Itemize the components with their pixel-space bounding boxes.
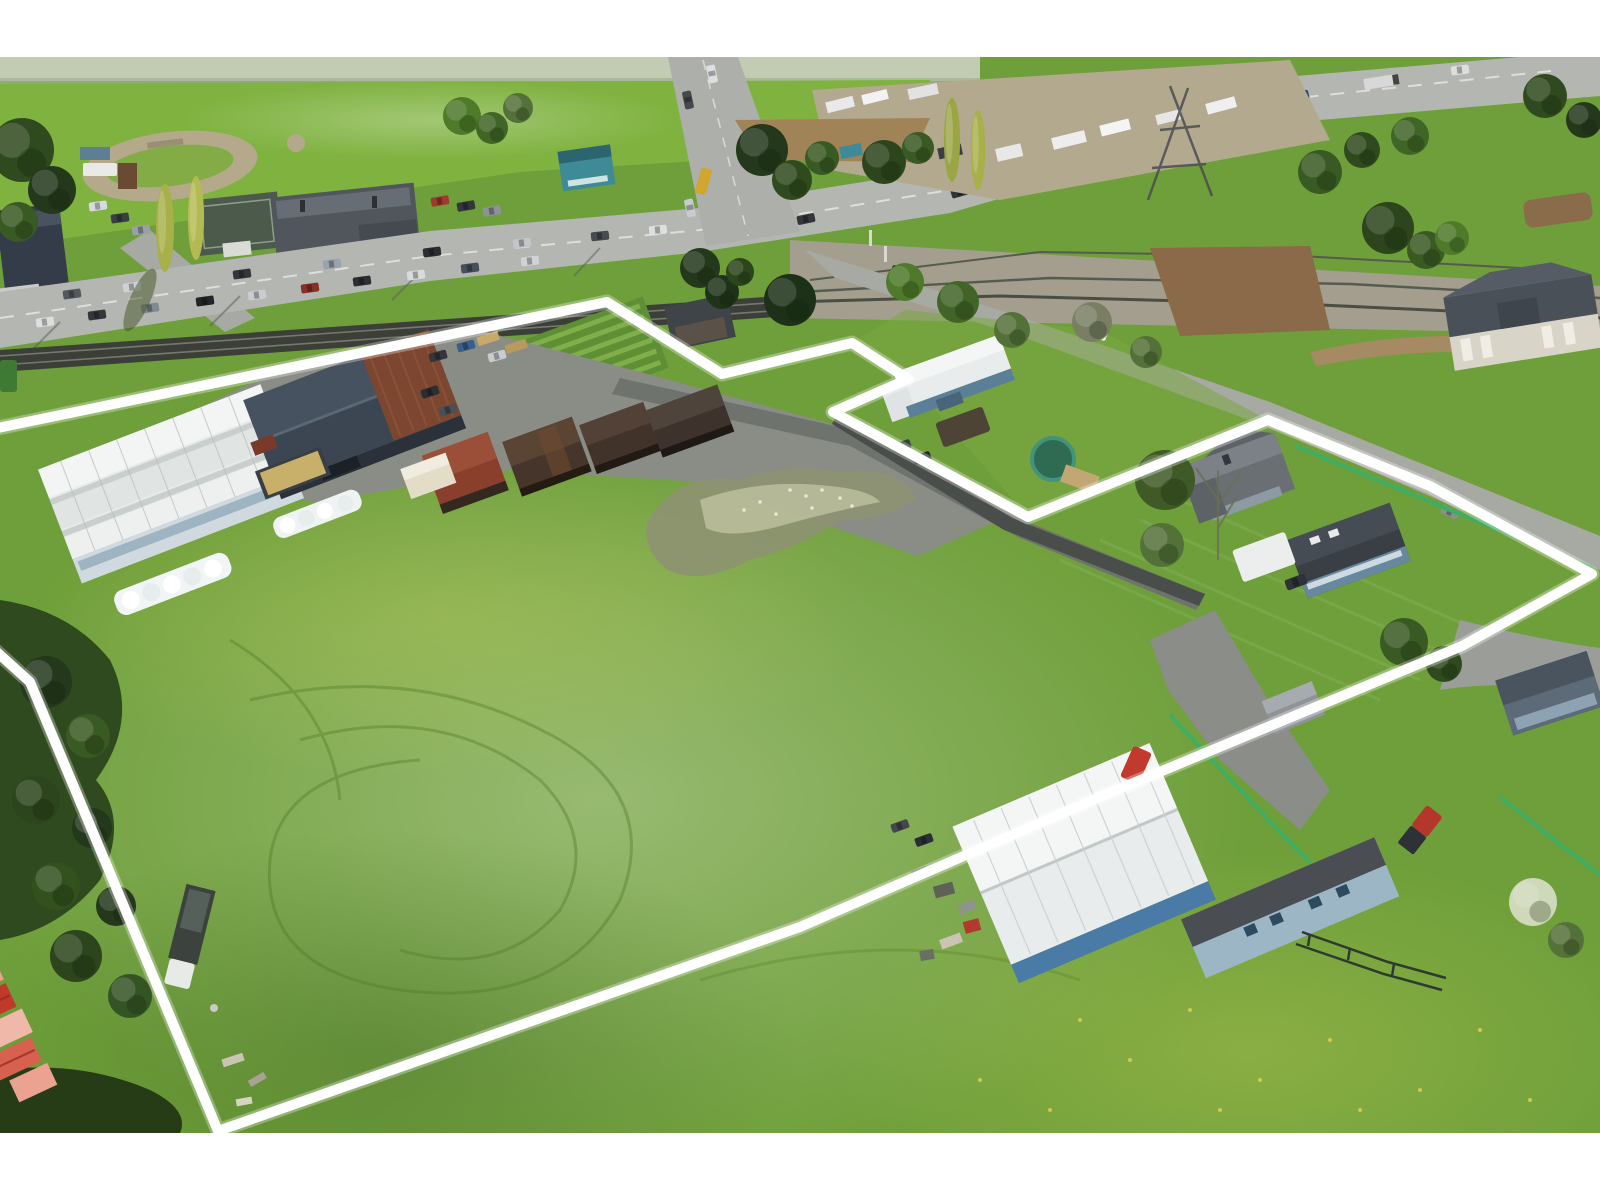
park-shed bbox=[118, 163, 137, 189]
letterbox-top bbox=[0, 0, 1600, 57]
parked-trailer bbox=[83, 163, 117, 176]
blue-pavilion bbox=[80, 147, 110, 160]
screenshot-root bbox=[0, 0, 1600, 1200]
aerial-photo bbox=[0, 0, 1600, 1200]
horizon-haze bbox=[0, 57, 980, 81]
dirt-area-rail bbox=[1150, 246, 1330, 336]
green-truck bbox=[0, 360, 17, 392]
letterbox-bottom bbox=[0, 1133, 1600, 1200]
teal-commercial-building bbox=[557, 144, 615, 191]
